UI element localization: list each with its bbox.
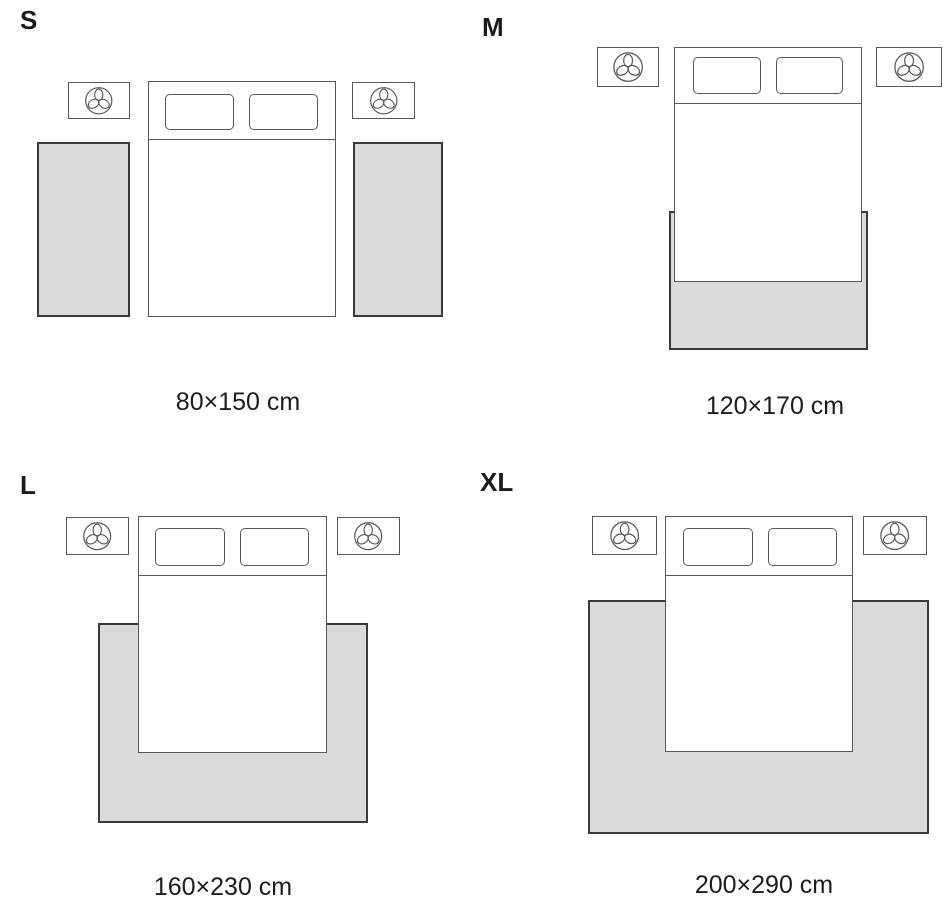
bed-headboard-area	[139, 517, 326, 576]
pillow-right	[240, 528, 309, 566]
rug-dimensions-label: 120×170 cm	[625, 391, 925, 421]
plant-icon	[878, 519, 911, 552]
bed	[148, 81, 336, 317]
pillow-left	[165, 94, 234, 130]
pillow-left	[683, 528, 753, 566]
plant-icon	[352, 520, 384, 552]
bed	[138, 516, 327, 753]
rug-size-guide: S	[0, 0, 950, 900]
plant-icon	[81, 520, 113, 552]
plant-icon	[608, 519, 641, 552]
nightstand-right	[337, 517, 400, 555]
size-label: XL	[480, 468, 513, 497]
nightstand-right	[352, 82, 415, 119]
size-variant-l: L	[0, 450, 475, 900]
nightstand-right	[863, 516, 927, 555]
size-variant-xl: XL	[475, 450, 950, 900]
pillow-right	[768, 528, 837, 566]
bed-headboard-area	[675, 48, 861, 104]
runner-rug-right	[353, 142, 443, 317]
size-label: M	[482, 13, 504, 42]
pillow-right	[249, 94, 318, 130]
runner-rug-left	[37, 142, 130, 317]
size-variant-s: S	[0, 0, 475, 450]
rug-dimensions-label: 80×150 cm	[88, 387, 388, 417]
size-label: L	[20, 471, 36, 500]
bed	[665, 516, 853, 752]
nightstand-right	[876, 47, 942, 87]
pillow-left	[155, 528, 225, 566]
bed	[674, 47, 862, 282]
nightstand-left	[66, 517, 129, 555]
plant-icon	[83, 85, 115, 117]
bed-headboard-area	[149, 82, 335, 140]
rug-dimensions-label: 160×230 cm	[73, 872, 373, 900]
size-variant-m: M	[475, 0, 950, 450]
rug-dimensions-label: 200×290 cm	[614, 870, 914, 900]
nightstand-left	[68, 82, 130, 119]
plant-icon	[892, 50, 926, 84]
plant-icon	[368, 85, 400, 117]
size-label: S	[20, 6, 37, 35]
plant-icon	[611, 50, 645, 84]
nightstand-left	[597, 47, 659, 87]
pillow-left	[693, 57, 761, 94]
pillow-right	[776, 57, 843, 94]
bed-headboard-area	[666, 517, 852, 576]
nightstand-left	[592, 516, 657, 555]
